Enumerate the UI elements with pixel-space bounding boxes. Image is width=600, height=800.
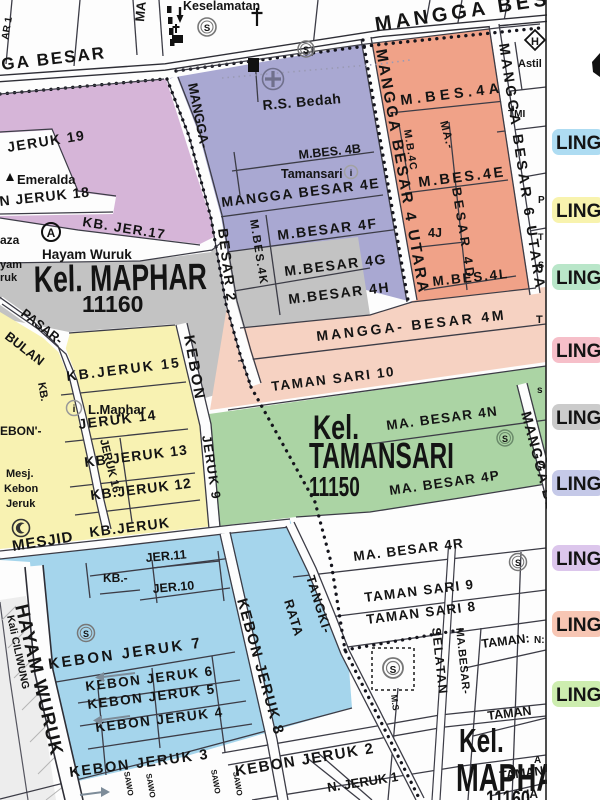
- svg-text:TMI: TMI: [508, 109, 525, 120]
- svg-text:Kel.: Kel.: [459, 724, 504, 760]
- svg-text:T: T: [536, 314, 543, 326]
- svg-text:Mesj.: Mesj.: [6, 468, 34, 480]
- svg-text:Jeruk: Jeruk: [6, 498, 36, 510]
- svg-text:ruk: ruk: [0, 272, 18, 284]
- svg-text:A: A: [47, 226, 56, 240]
- svg-text:11160: 11160: [82, 291, 143, 317]
- svg-text:LING: LING: [556, 201, 600, 222]
- svg-text:Keselamatan: Keselamatan: [183, 0, 260, 13]
- svg-text:Emeralda: Emeralda: [17, 172, 76, 187]
- svg-text:LING: LING: [556, 474, 600, 495]
- svg-text:Tamansari: Tamansari: [281, 167, 343, 181]
- svg-text:S: S: [303, 45, 309, 55]
- svg-text:P: P: [538, 195, 545, 206]
- svg-text:LING: LING: [556, 549, 600, 570]
- svg-text:S: S: [204, 23, 210, 34]
- svg-text:Kebon: Kebon: [4, 483, 39, 495]
- svg-text:IA: IA: [526, 787, 538, 800]
- svg-text:M.S: M.S: [389, 694, 401, 711]
- svg-text:LING: LING: [556, 133, 600, 154]
- svg-text:LING: LING: [556, 685, 600, 706]
- svg-text:4J: 4J: [428, 226, 442, 240]
- svg-text:i: i: [350, 168, 353, 178]
- svg-text:11150: 11150: [309, 471, 360, 503]
- svg-text:LING: LING: [556, 268, 600, 289]
- svg-text:S: S: [538, 460, 545, 471]
- svg-text:S: S: [83, 629, 89, 639]
- svg-text:yam: yam: [0, 259, 22, 271]
- svg-text:EBON'-: EBON'-: [0, 424, 42, 438]
- svg-text:T: T: [538, 232, 544, 242]
- svg-text:A: A: [534, 755, 541, 766]
- svg-text:LING: LING: [556, 408, 600, 429]
- svg-text:S: S: [515, 558, 521, 568]
- svg-text:TAMANSARI: TAMANSARI: [309, 435, 454, 476]
- svg-text:S: S: [390, 665, 397, 676]
- svg-text:S: S: [502, 434, 508, 444]
- svg-text:i: i: [73, 404, 76, 415]
- svg-text:s: s: [537, 385, 543, 396]
- svg-text:N:: N:: [534, 635, 545, 646]
- svg-text:LING: LING: [556, 341, 600, 362]
- svg-text:KB.-: KB.-: [103, 571, 128, 585]
- svg-text:11160: 11160: [486, 787, 530, 800]
- svg-text:MA: MA: [132, 0, 149, 22]
- svg-text:Astil: Astil: [518, 58, 542, 70]
- svg-text:S: S: [538, 260, 544, 270]
- svg-text:LING: LING: [556, 615, 600, 636]
- svg-text:H: H: [531, 36, 539, 48]
- svg-text:aza: aza: [0, 233, 20, 247]
